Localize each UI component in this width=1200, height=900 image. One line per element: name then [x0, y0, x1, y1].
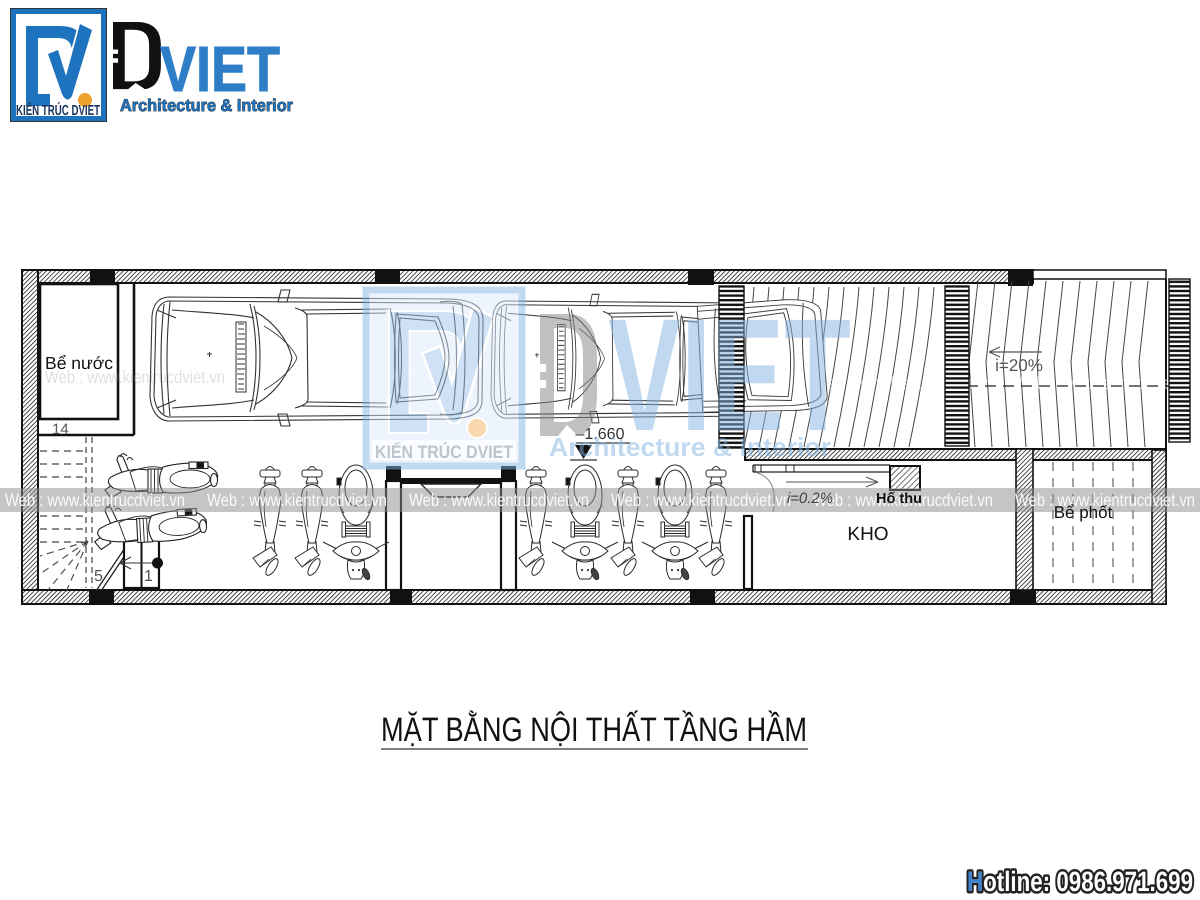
svg-text:1: 1 [144, 568, 153, 585]
svg-text:Web : www.kientrucdviet.vn: Web : www.kientrucdviet.vn [5, 490, 185, 510]
svg-text:i=0.2%: i=0.2% [787, 490, 833, 507]
svg-text:Web : www.kientrucdviet.vn: Web : www.kientrucdviet.vn [45, 367, 225, 387]
svg-text:KIẾN TRÚC DVIET: KIẾN TRÚC DVIET [16, 102, 100, 119]
svg-text:KHO: KHO [847, 524, 888, 545]
svg-text:MẶT BẰNG NỘI THẤT TẦNG HẦM: MẶT BẰNG NỘI THẤT TẦNG HẦM [381, 710, 807, 749]
svg-text:Architecture & Interior: Architecture & Interior [120, 96, 293, 115]
svg-text:Web : www.kientrucdviet.vn: Web : www.kientrucdviet.vn [409, 490, 589, 510]
svg-text:Web : www.kientrucdviet.vn: Web : www.kientrucdviet.vn [611, 490, 791, 510]
svg-text:KIẾN TRÚC DVIET: KIẾN TRÚC DVIET [375, 441, 513, 462]
svg-text:Hotline: 0986.971.699: Hotline: 0986.971.699 [967, 866, 1193, 897]
svg-text:Bể phốt: Bể phốt [1054, 503, 1113, 522]
svg-text:Architecture & Interior: Architecture & Interior [549, 432, 831, 462]
svg-text:14: 14 [52, 421, 69, 438]
svg-text:5: 5 [94, 568, 103, 585]
svg-text:Web : www.kientrucdviet.vn: Web : www.kientrucdviet.vn [207, 490, 387, 510]
svg-text:Hố thu: Hố thu [876, 491, 922, 507]
svg-text:i=20%: i=20% [995, 356, 1043, 375]
svg-text:VIET: VIET [160, 33, 280, 105]
svg-text:Web : www.kientrucdviet.vn: Web : www.kientrucdviet.vn [1015, 373, 1195, 393]
